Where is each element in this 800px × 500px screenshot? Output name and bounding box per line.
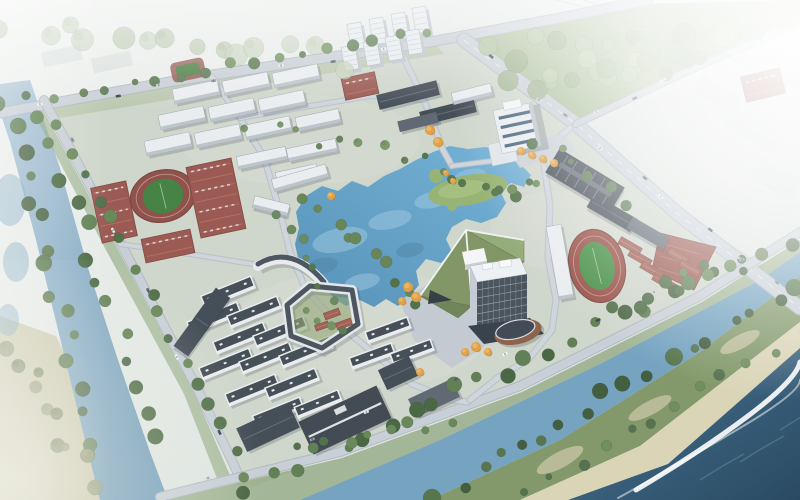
campus-aerial-rendering bbox=[0, 0, 800, 500]
atmospheric-haze bbox=[0, 0, 800, 500]
aerial-view-canvas bbox=[0, 0, 800, 500]
